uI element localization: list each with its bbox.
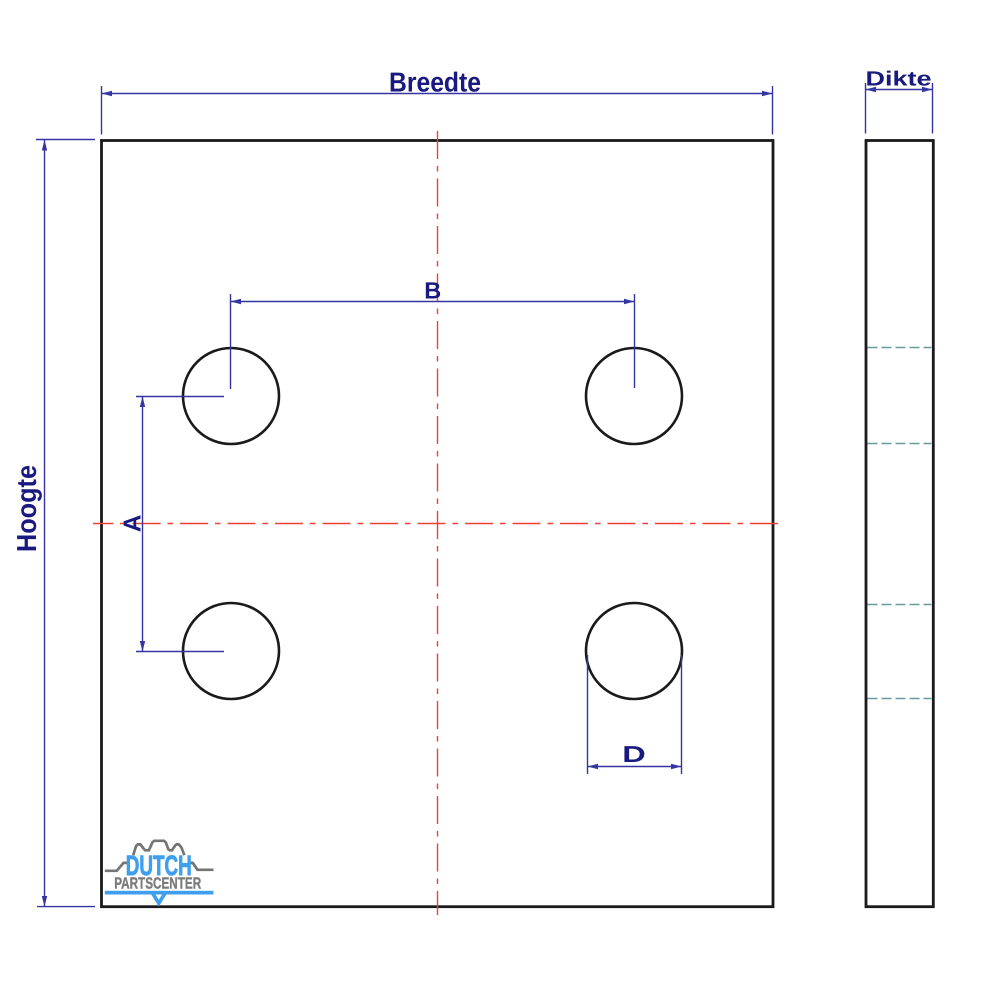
svg-text:B: B (424, 278, 441, 304)
svg-text:PARTSCENTER: PARTSCENTER (114, 875, 201, 892)
svg-text:A: A (119, 514, 146, 532)
svg-text:Dikte: Dikte (866, 68, 932, 91)
svg-text:D: D (622, 741, 646, 767)
svg-text:Breedte: Breedte (389, 67, 481, 98)
svg-text:Hoogte: Hoogte (11, 465, 42, 552)
